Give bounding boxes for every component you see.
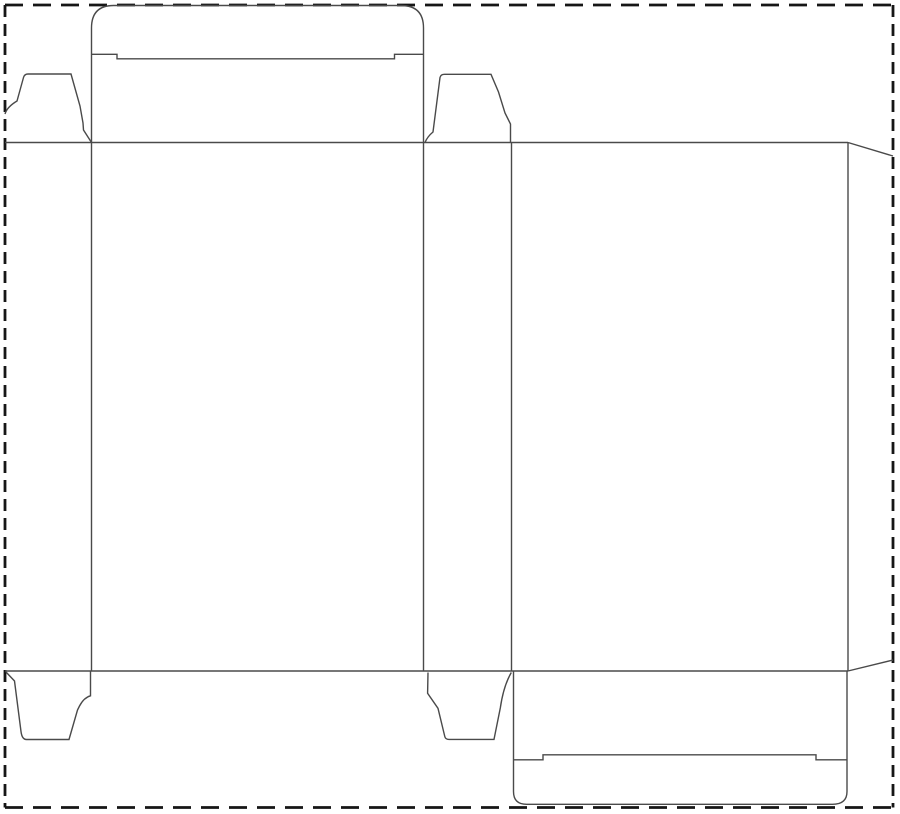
glue-flap-bottom-edge [848,660,893,671]
glue-flap-top-edge [848,143,893,157]
artboard-border [5,5,893,808]
top-tuck-lid-outline [92,6,424,143]
bottom-tuck-lid-slit-line [514,755,848,760]
carton-dieline-drawing [0,0,900,814]
top-tuck-lid-slit-line [92,54,424,59]
bottom-middle-dust-flap [428,673,512,740]
top-middle-dust-flap [425,74,511,142]
top-left-dust-flap [5,74,92,143]
bottom-left-dust-flap [6,671,91,740]
bottom-tuck-lid-outline [514,672,848,805]
dieline-canvas [0,0,900,814]
